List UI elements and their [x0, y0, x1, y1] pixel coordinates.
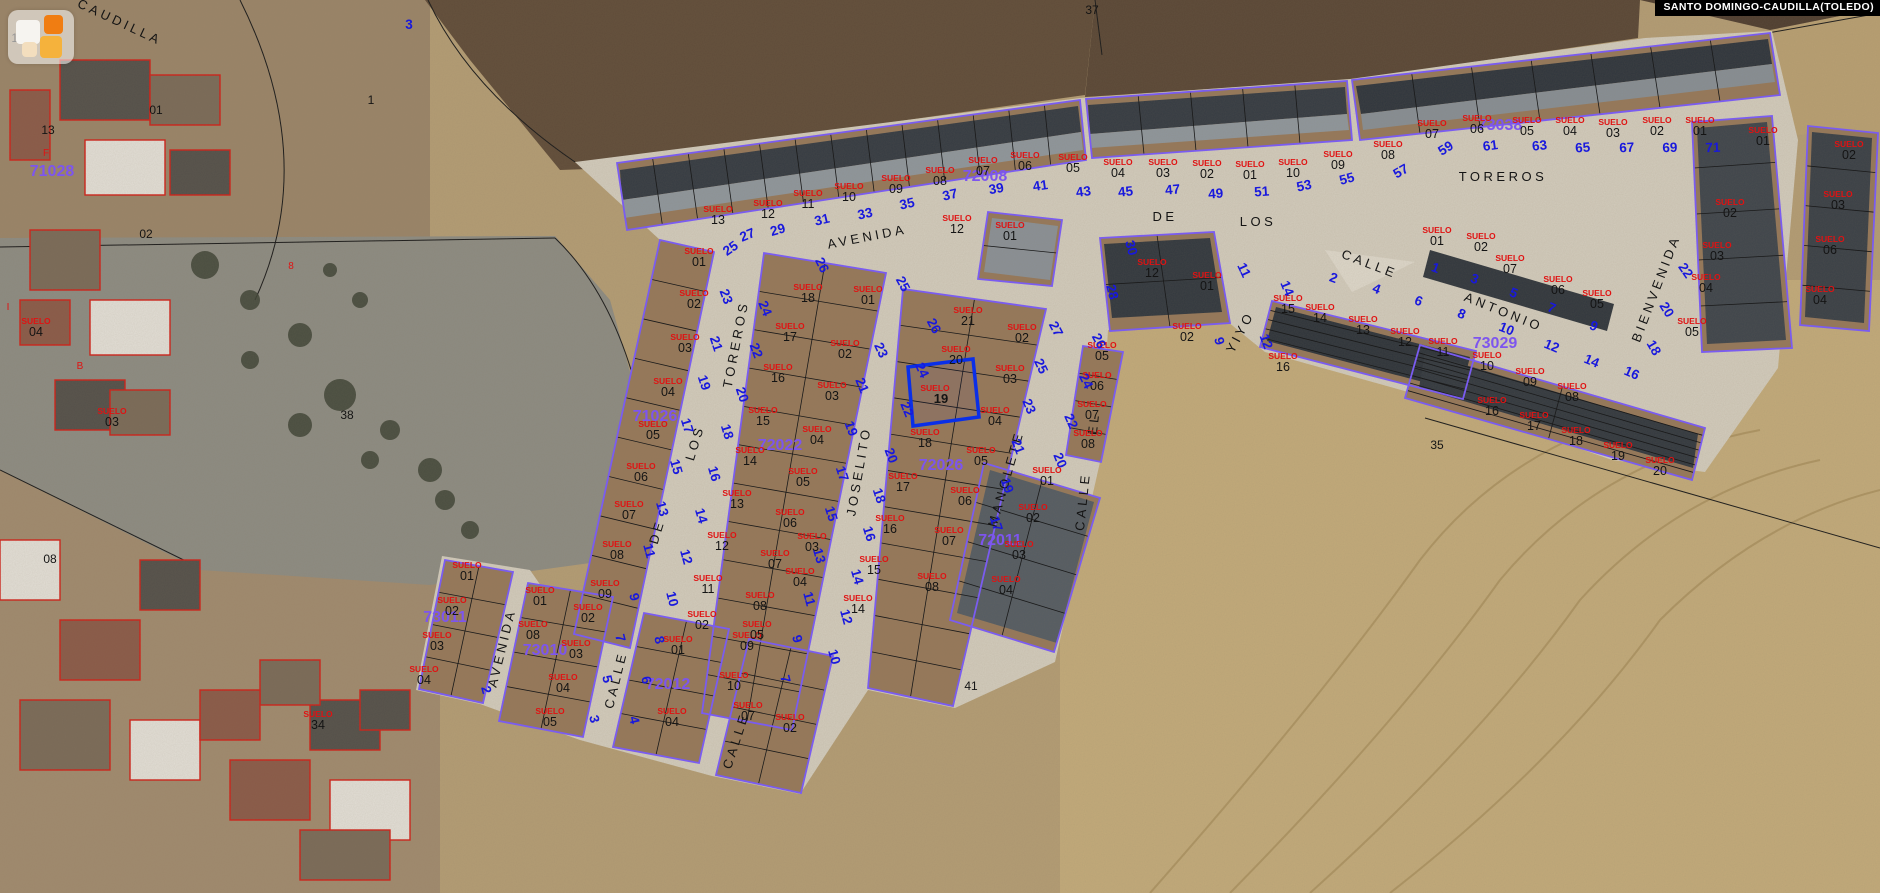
parcel-number-label: 18 [918, 436, 932, 450]
parcel-number-label: 07 [768, 557, 782, 571]
selected-parcel-number-label: 19 [934, 391, 948, 406]
parcel-number-label: 03 [569, 647, 583, 661]
parcel-number-label: 06 [783, 516, 797, 530]
parcel-number-label: 06 [1470, 122, 1484, 136]
parcel-number-label: 17 [896, 480, 910, 494]
parcel-number-label: 01 [1200, 279, 1214, 293]
parcel-number-label: 04 [29, 325, 43, 339]
parcel-number-label: 02 [1723, 206, 1737, 220]
parcel-number-label: 10 [727, 679, 741, 693]
parcel-number-label: 05 [750, 628, 764, 642]
map-misc-label: 37 [1085, 3, 1099, 17]
map-misc-label: 41 [964, 679, 978, 693]
parcel-number-label: 02 [1842, 148, 1856, 162]
map-tools-widget[interactable] [8, 10, 74, 64]
parcel-number-label: 13 [1356, 323, 1370, 337]
parcel-number-label: 13 [711, 213, 725, 227]
street-name-label: LOS [1240, 214, 1277, 229]
parcel-number-label: 15 [756, 414, 770, 428]
parcel-number-label: 11 [702, 582, 715, 596]
parcel-number-label: 03 [1156, 166, 1170, 180]
parcel-number-label: 07 [942, 534, 956, 548]
house-number-label: 65 [1575, 139, 1592, 155]
parcel-number-label: 04 [1813, 293, 1827, 307]
parcel-number-label: 08 [1381, 148, 1395, 162]
parcel-number-label: 15 [1281, 302, 1295, 316]
parcel-number-label: 03 [825, 389, 839, 403]
cadastral-map[interactable]: CAUDILLAAVENIDADELOSTOREROSTOREROSLOSDEA… [0, 0, 1880, 893]
parcel-number-label: 01 [692, 255, 706, 269]
parcel-number-label: 02 [838, 347, 852, 361]
parcel-number-label: 04 [793, 575, 807, 589]
parcel-number-label: 09 [889, 182, 903, 196]
cadastral-map-viewer[interactable]: CAUDILLAAVENIDADELOSTOREROSTOREROSLOSDEA… [0, 0, 1880, 893]
parcel-number-label: 07 [1085, 408, 1099, 422]
parcel-number-label: 09 [598, 587, 612, 601]
widget-tile-icon [16, 20, 40, 44]
map-misc-label: 38 [340, 408, 354, 422]
house-number-label: 43 [1075, 183, 1092, 200]
parcel-number-label: 02 [445, 604, 459, 618]
parcel-number-label: 07 [622, 508, 636, 522]
parcel-number-label: 03 [105, 415, 119, 429]
parcel-number-label: 05 [974, 454, 988, 468]
parcel-number-label: 08 [925, 580, 939, 594]
parcel-number-label: 04 [988, 414, 1002, 428]
parcel-number-label: 03 [1831, 198, 1845, 212]
map-misc-label: 35 [1430, 438, 1444, 452]
widget-tile-icon [40, 36, 62, 58]
map-misc-label: 8 [288, 261, 294, 272]
municipality-label: SANTO DOMINGO-CAUDILLA(TOLEDO) [1655, 0, 1880, 16]
parcel-number-label: 01 [1693, 124, 1707, 138]
parcel-number-label: 01 [1756, 134, 1770, 148]
parcel-number-label: 11 [802, 197, 815, 211]
map-misc-label: I [7, 302, 10, 313]
street-name-label: TOREROS [1459, 169, 1548, 184]
parcel-number-label: 04 [999, 583, 1013, 597]
map-misc-label: 01 [149, 103, 163, 117]
parcel-number-label: 16 [883, 522, 897, 536]
parcel-number-label: 18 [1569, 434, 1583, 448]
block-number-label: 71028 [30, 163, 75, 180]
parcel-number-label: 20 [1653, 464, 1667, 478]
parcel-number-label: 17 [783, 330, 797, 344]
photo-texture [0, 0, 1880, 893]
parcel-number-label: 04 [556, 681, 570, 695]
parcel-number-label: 07 [1425, 127, 1439, 141]
parcel-number-label: 01 [671, 643, 685, 657]
parcel-number-label: 07 [1503, 262, 1517, 276]
parcel-number-label: 08 [610, 548, 624, 562]
map-misc-label: B [77, 361, 84, 372]
parcel-number-label: 19 [1611, 449, 1625, 463]
house-number-label: 39 [988, 180, 1005, 197]
parcel-number-label: 12 [1145, 266, 1159, 280]
parcel-number-label: 02 [783, 721, 797, 735]
parcel-number-label: 05 [1590, 297, 1604, 311]
map-misc-label: 13 [41, 123, 55, 137]
parcel-number-label: 02 [695, 618, 709, 632]
parcel-number-label: 04 [1563, 124, 1577, 138]
parcel-number-label: 03 [1710, 249, 1724, 263]
parcel-number-label: 04 [1699, 281, 1713, 295]
map-misc-label: 1 [368, 93, 375, 107]
parcel-number-label: 04 [665, 715, 679, 729]
street-name-label: DE [1152, 209, 1177, 224]
parcel-number-label: 06 [1018, 159, 1032, 173]
house-number-label: 69 [1662, 140, 1678, 156]
parcel-number-label: 12 [715, 539, 729, 553]
parcel-number-label: 13 [730, 497, 744, 511]
parcel-number-label: 03 [678, 341, 692, 355]
parcel-number-label: 10 [1480, 359, 1494, 373]
parcel-number-label: 01 [1430, 234, 1444, 248]
parcel-number-label: 06 [958, 494, 972, 508]
parcel-number-label: 07 [741, 709, 755, 723]
parcel-number-label: 21 [961, 314, 975, 328]
map-misc-label: 02 [139, 227, 153, 241]
parcel-number-label: 14 [1313, 311, 1327, 325]
widget-tile-icon [22, 42, 37, 57]
widget-tile-icon [44, 15, 63, 34]
parcel-number-label: 09 [1331, 158, 1345, 172]
house-number-label: 51 [1254, 183, 1271, 199]
parcel-number-label: 06 [1823, 243, 1837, 257]
parcel-number-label: 04 [810, 433, 824, 447]
parcel-number-label: 02 [1474, 240, 1488, 254]
parcel-number-label: 17 [1527, 419, 1541, 433]
parcel-number-label: 03 [1606, 126, 1620, 140]
parcel-number-label: 08 [1565, 390, 1579, 404]
parcel-number-label: 06 [634, 470, 648, 484]
parcel-number-label: 02 [1200, 167, 1214, 181]
parcel-number-label: 02 [687, 297, 701, 311]
parcel-number-label: 05 [1685, 325, 1699, 339]
map-misc-label: 08 [43, 552, 57, 566]
parcel-number-label: 09 [1523, 375, 1537, 389]
block-number-label: 72026 [919, 457, 964, 474]
house-number-label: 45 [1117, 183, 1134, 200]
parcel-number-label: 08 [526, 628, 540, 642]
parcel-number-label: 01 [1243, 168, 1257, 182]
parcel-number-label: 10 [1286, 166, 1300, 180]
parcel-number-label: 16 [771, 371, 785, 385]
parcel-number-label: 12 [1398, 335, 1412, 349]
parcel-number-label: 02 [1180, 330, 1194, 344]
parcel-number-label: 02 [1650, 124, 1664, 138]
house-number-label: 49 [1208, 186, 1224, 202]
parcel-number-label: 03 [430, 639, 444, 653]
house-number-label: 47 [1164, 181, 1180, 197]
parcel-number-label: 18 [801, 291, 815, 305]
parcel-number-label: 12 [761, 207, 775, 221]
parcel-number-label: 03 [1003, 372, 1017, 386]
parcel-number-label: 04 [1111, 166, 1125, 180]
parcel-number-label: 34 [311, 718, 325, 732]
parcel-number-label: 05 [1095, 349, 1109, 363]
parcel-number-label: 05 [1520, 124, 1534, 138]
parcel-number-label: 08 [753, 599, 767, 613]
parcel-number-label: 06 [1551, 283, 1565, 297]
parcel-number-label: 02 [1015, 331, 1029, 345]
house-number-label: 41 [1032, 177, 1049, 194]
parcel-number-label: 15 [867, 563, 881, 577]
parcel-number-label: 16 [1485, 404, 1499, 418]
parcel-number-label: 04 [661, 385, 675, 399]
parcel-number-label: 07 [976, 164, 990, 178]
parcel-number-label: 11 [1437, 345, 1450, 359]
house-number-label: 71 [1705, 140, 1721, 156]
parcel-number-label: 08 [1081, 437, 1095, 451]
house-number-label: 61 [1482, 137, 1499, 154]
parcel-number-label: 01 [533, 594, 547, 608]
parcel-number-label: 08 [933, 174, 947, 188]
parcel-number-label: 01 [1003, 229, 1017, 243]
parcel-number-label: 20 [949, 353, 963, 367]
house-number-label: 3 [405, 17, 413, 32]
parcel-number-label: 01 [1040, 474, 1054, 488]
parcel-number-label: 01 [861, 293, 875, 307]
map-misc-label: F [43, 148, 49, 159]
parcel-number-label: 05 [1066, 161, 1080, 175]
parcel-number-label: 01 [460, 569, 474, 583]
parcel-number-label: 02 [581, 611, 595, 625]
house-number-label: 63 [1531, 137, 1548, 154]
parcel-number-label: 10 [842, 190, 856, 204]
parcel-number-label: 14 [743, 454, 757, 468]
parcel-number-label: 02 [1026, 511, 1040, 525]
parcel-number-label: 16 [1276, 360, 1290, 374]
parcel-number-label: 04 [417, 673, 431, 687]
parcel-number-label: 05 [646, 428, 660, 442]
parcel-number-label: 03 [1012, 548, 1026, 562]
parcel-number-label: 05 [796, 475, 810, 489]
parcel-number-label: 05 [543, 715, 557, 729]
parcel-number-label: 12 [950, 222, 964, 236]
house-number-label: 67 [1619, 140, 1635, 156]
